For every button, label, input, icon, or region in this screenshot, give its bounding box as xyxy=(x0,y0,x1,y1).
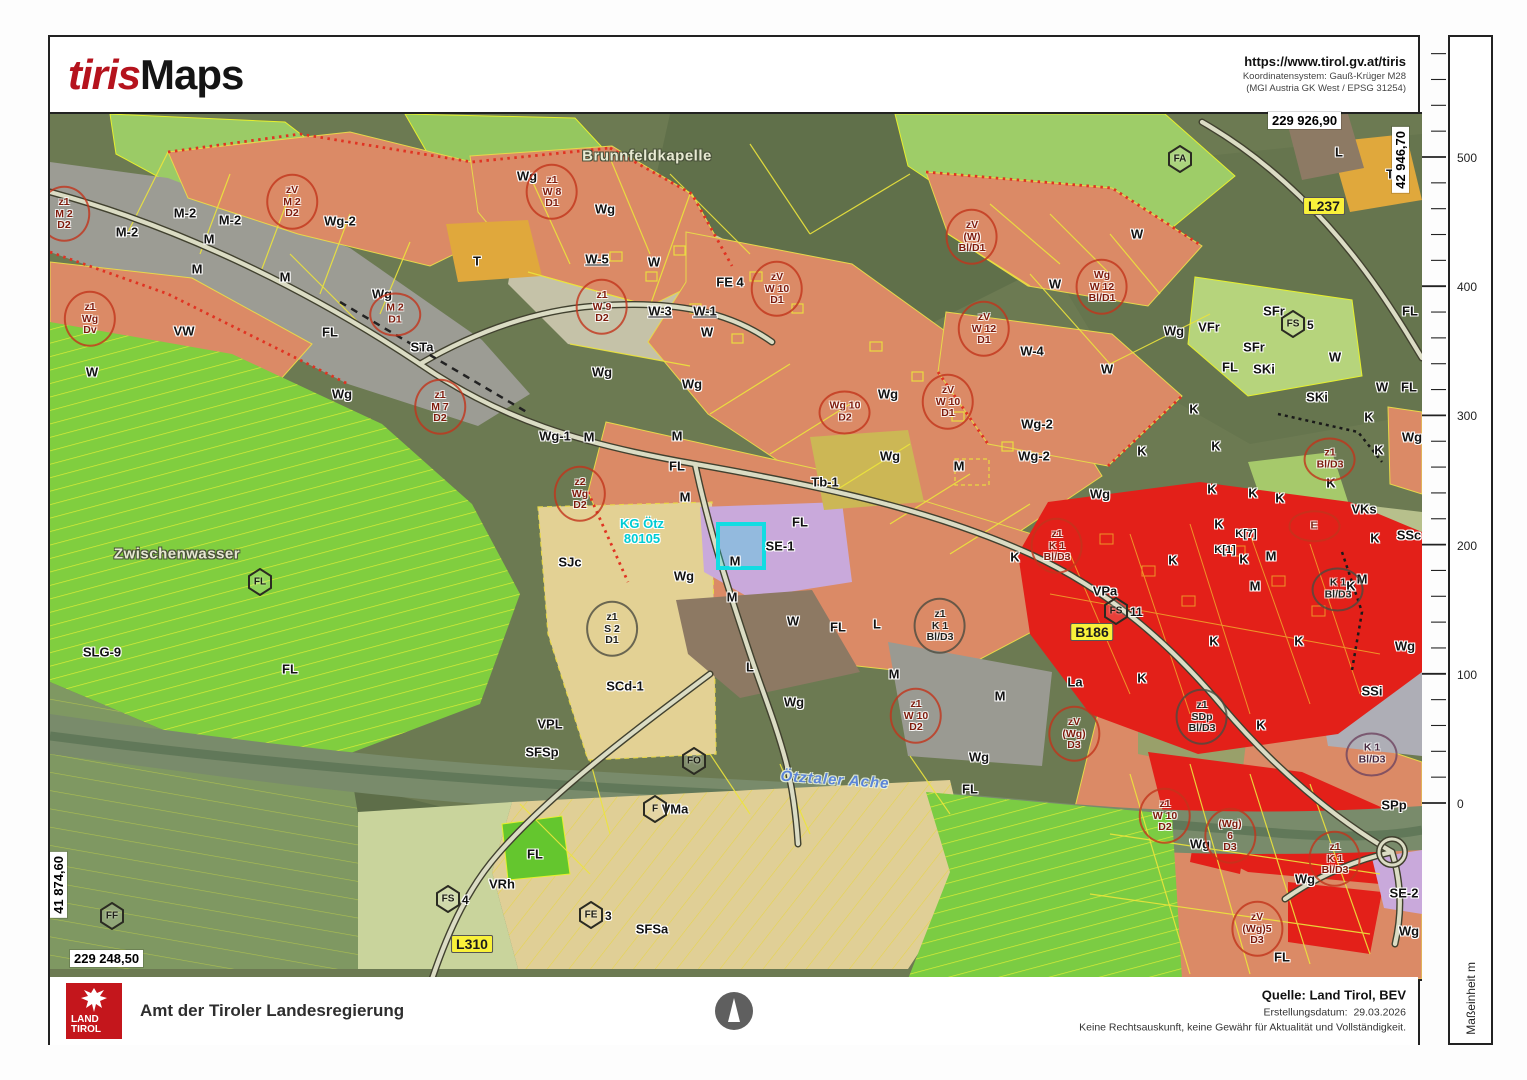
zone-label: FL xyxy=(1274,950,1290,965)
north-arrow xyxy=(728,998,740,1022)
map-annotation: E xyxy=(1310,520,1317,532)
zone-label: SLG-9 xyxy=(83,645,121,660)
zone-label: M-2 xyxy=(174,206,196,221)
zone-label: M-2 xyxy=(116,225,138,240)
map-overlay: M-2M-2M-2MMMVWWg-2TSTaFLWWgWgWgW-5WW-3W-… xyxy=(50,114,1422,979)
zone-label: SE-2 xyxy=(1390,886,1419,901)
road-badge-l310: L310 xyxy=(451,935,493,953)
zone-label: K xyxy=(1326,476,1335,491)
zone-label: FL xyxy=(282,662,298,677)
zone-label: K[7] xyxy=(1235,528,1256,540)
map-annotation: zVW 12D1 xyxy=(972,312,997,347)
coord-bottom-left-y: 41 874,60 xyxy=(50,852,67,918)
agency-title: Amt der Tiroler Landesregierung xyxy=(140,1001,404,1021)
zone-label: K xyxy=(1364,410,1373,425)
zone-label: M xyxy=(584,430,595,445)
map-annotation: z2WgD2 xyxy=(572,477,588,512)
map-annotation: z1SDpBl/D3 xyxy=(1189,700,1216,735)
zone-label: W xyxy=(1131,227,1143,242)
zone-label: M xyxy=(730,554,741,569)
zone-label: W-5 xyxy=(585,252,609,267)
map-annotation: z1S 2D1 xyxy=(604,612,620,647)
zone-label: W xyxy=(1376,380,1388,395)
zone-label: FL xyxy=(1402,304,1418,319)
zone-label: Wg xyxy=(674,569,694,584)
zone-label: W-4 xyxy=(1020,344,1044,359)
zone-label: M xyxy=(672,429,683,444)
tiris-maps-logo: tirisMaps xyxy=(68,51,243,99)
map-annotation: z1K 1Bl/D3 xyxy=(927,609,954,644)
zone-label: M xyxy=(727,590,738,605)
map-annotation: K 1Bl/D3 xyxy=(1325,578,1352,601)
zone-label: T xyxy=(473,254,481,269)
scalebar-unit-label: Maßeinheit m xyxy=(1464,962,1478,1035)
zone-label: M xyxy=(204,232,215,247)
zone-label: K xyxy=(1168,553,1177,568)
zone-label: Wg xyxy=(880,449,900,464)
zone-label: VFr xyxy=(1198,320,1220,335)
zone-label: W xyxy=(1049,277,1061,292)
hex-badge-fs: FS11 xyxy=(1103,597,1129,625)
source-credit: Quelle: Land Tirol, BEV xyxy=(1079,986,1406,1006)
river-label: Ötztaler Ache xyxy=(780,768,890,793)
zone-label: Wg-1 xyxy=(539,429,571,444)
hex-badge-fs: FS5 xyxy=(1280,310,1306,338)
header-meta: https://www.tirol.gv.at/tiris Koordinate… xyxy=(1243,54,1406,96)
zone-label: VPL xyxy=(537,717,562,732)
zone-label: K xyxy=(1137,671,1146,686)
zone-label: K xyxy=(1275,491,1284,506)
map-annotation: K 1Bl/D3 xyxy=(1359,743,1386,766)
zone-label: FL xyxy=(1222,360,1238,375)
map-document-frame: tirisMaps https://www.tirol.gv.at/tiris … xyxy=(48,35,1420,1045)
map-annotation: (Wg)6D3 xyxy=(1218,819,1241,854)
zone-label: K xyxy=(1209,634,1218,649)
zone-label: K[1] xyxy=(1214,544,1235,556)
hex-badge-fl: FL xyxy=(247,568,273,596)
coordinate-system-line1: Koordinatensystem: Gauß-Krüger M28 xyxy=(1243,71,1406,83)
zone-label: K xyxy=(1248,486,1257,501)
zone-label: Wg-2 xyxy=(324,214,356,229)
zone-label: VW xyxy=(174,324,195,339)
tirol-eagle-icon xyxy=(77,986,111,1016)
zone-label: FL xyxy=(322,325,338,340)
coordinate-system-line2: (MGI Austria GK West / EPSG 31254) xyxy=(1243,83,1406,95)
zone-label: Wg xyxy=(784,695,804,710)
disclaimer: Keine Rechtsauskunft, keine Gewähr für A… xyxy=(1079,1021,1406,1037)
map-annotation: z1M 7D2 xyxy=(431,390,449,425)
map-annotation: WgW 12Bl/D1 xyxy=(1089,270,1116,305)
zone-label: SCd-1 xyxy=(606,679,644,694)
zone-label: M-2 xyxy=(219,213,241,228)
zone-label: SSc xyxy=(1397,528,1422,543)
zone-label: K xyxy=(1214,517,1223,532)
zone-label: K xyxy=(1370,531,1379,546)
creation-date-label: Erstellungsdatum: xyxy=(1264,1006,1348,1018)
scalebar-tick-label: 400 xyxy=(1457,280,1477,294)
zone-label: Wg-2 xyxy=(1018,449,1050,464)
zone-label: M xyxy=(1250,579,1261,594)
zone-label: M xyxy=(954,459,965,474)
zone-label: FE 4 xyxy=(716,275,743,290)
zone-label: L xyxy=(873,617,881,632)
zone-label: Wg xyxy=(595,202,615,217)
place-label: Brunnfeldkapelle xyxy=(582,148,712,165)
map-viewport[interactable]: M-2M-2M-2MMMVWWg-2TSTaFLWWgWgWgW-5WW-3W-… xyxy=(50,112,1422,981)
zone-label: K xyxy=(1137,444,1146,459)
road-badge-b186: B186 xyxy=(1070,623,1113,641)
zone-label: Tb-1 xyxy=(811,475,838,490)
zone-label: K xyxy=(1256,718,1265,733)
zone-label: SKi xyxy=(1306,390,1328,405)
zone-label: L xyxy=(746,660,754,675)
hex-badge-fe: FE3 xyxy=(578,901,604,929)
hex-badge-f: F xyxy=(642,795,668,823)
zone-label: W xyxy=(1101,362,1113,377)
zone-label: W-3 xyxy=(648,304,672,319)
hex-badge-fo: FO xyxy=(681,747,707,775)
footer: LAND TIROL Amt der Tiroler Landesregieru… xyxy=(50,977,1418,1045)
map-annotation: z1K 1Bl/D3 xyxy=(1044,529,1071,564)
zone-label: SFSa xyxy=(636,922,669,937)
zone-label: Wg xyxy=(1402,430,1422,445)
land-tirol-logo: LAND TIROL xyxy=(66,983,122,1039)
zone-label: FL xyxy=(962,782,978,797)
zone-label: Wg-2 xyxy=(1021,417,1053,432)
land-tirol-logo-text: LAND TIROL xyxy=(71,1015,101,1035)
zone-label: K xyxy=(1211,439,1220,454)
scalebar-panel: Maßeinheit m 5004003002001000 xyxy=(1448,35,1493,1045)
zone-label: W-1 xyxy=(693,304,717,319)
zone-label: Wg xyxy=(1164,324,1184,339)
hex-badge-fs: FS4 xyxy=(435,885,461,913)
zone-label: W xyxy=(86,365,98,380)
zone-label: VKs xyxy=(1351,502,1376,517)
map-annotation: z1K 1Bl/D3 xyxy=(1322,842,1349,877)
map-annotation: z1W 8D1 xyxy=(543,175,562,210)
place-label: Zwischenwasser xyxy=(114,546,240,563)
zone-label: Wg xyxy=(1190,837,1210,852)
scalebar-tick-label: 300 xyxy=(1457,409,1477,423)
zone-label: STa xyxy=(411,340,434,355)
hex-badge-ff: FF xyxy=(99,902,125,930)
footer-meta: Quelle: Land Tirol, BEV Erstellungsdatum… xyxy=(1079,986,1406,1037)
zone-label: K xyxy=(1207,482,1216,497)
zone-label: Wg xyxy=(332,387,352,402)
zone-label: M xyxy=(1357,572,1368,587)
zone-label: SFr xyxy=(1243,340,1265,355)
map-annotation: zV(Wg)D3 xyxy=(1062,717,1085,752)
zone-label: M xyxy=(995,689,1006,704)
map-annotation: z1W 10D2 xyxy=(904,699,929,734)
map-annotation: z1Bl/D3 xyxy=(1317,448,1344,471)
zone-label: W xyxy=(701,325,713,340)
zone-label: FL xyxy=(669,459,685,474)
logo-maps: Maps xyxy=(140,51,243,98)
zone-label: FL xyxy=(792,515,808,530)
logo-tiris: tiris xyxy=(68,51,140,98)
logo-text-tirol: TIROL xyxy=(71,1025,101,1035)
zone-label: L xyxy=(1335,145,1343,160)
map-annotation: zVW 10D1 xyxy=(765,272,790,307)
zone-label: FL xyxy=(1401,380,1417,395)
zone-label: K xyxy=(1374,443,1383,458)
header: tirisMaps https://www.tirol.gv.at/tiris … xyxy=(50,37,1418,112)
zone-label: M xyxy=(280,270,291,285)
coord-bottom-left-x: 229 248,50 xyxy=(70,950,143,967)
zone-label: W xyxy=(787,614,799,629)
zone-label: VRh xyxy=(489,877,515,892)
zone-label: SSi xyxy=(1362,684,1383,699)
zone-label: K xyxy=(1239,552,1248,567)
zone-label: Wg xyxy=(1090,487,1110,502)
zone-label: FL xyxy=(527,847,543,862)
tiris-url: https://www.tirol.gv.at/tiris xyxy=(1243,54,1406,71)
zone-label: M xyxy=(192,262,203,277)
scalebar-tick-label: 0 xyxy=(1457,797,1464,811)
zone-label: K xyxy=(1189,402,1198,417)
zone-label: Wg xyxy=(517,169,537,184)
zone-label: FL xyxy=(830,620,846,635)
scalebar-tick-label: 200 xyxy=(1457,539,1477,553)
coord-top-right-x: 229 926,90 xyxy=(1268,112,1341,129)
zone-label: Wg xyxy=(1295,872,1315,887)
zone-label: Wg xyxy=(878,387,898,402)
zone-label: Wg xyxy=(1395,639,1415,654)
creation-date-value: 29.03.2026 xyxy=(1353,1006,1406,1018)
zone-label: W xyxy=(648,255,660,270)
zone-label: M xyxy=(889,667,900,682)
map-annotation: zV(Wg)5D3 xyxy=(1242,912,1271,947)
zone-label: SE-1 xyxy=(766,539,795,554)
creation-date: Erstellungsdatum: 29.03.2026 xyxy=(1079,1005,1406,1021)
zone-label: SKi xyxy=(1253,362,1275,377)
zone-label: SPp xyxy=(1381,798,1406,813)
map-annotation: zV(W)Bl/D1 xyxy=(959,220,986,255)
map-annotation: z1W 10D2 xyxy=(1153,799,1178,834)
zone-label: K xyxy=(1294,634,1303,649)
tiris-maps-page: tirisMaps https://www.tirol.gv.at/tiris … xyxy=(0,0,1527,1080)
zone-label: W xyxy=(1329,350,1341,365)
hex-badge-fa: FA xyxy=(1167,145,1193,173)
zone-label: Wg xyxy=(682,377,702,392)
coord-top-right-y: 42 946,70 xyxy=(1392,127,1409,193)
zone-label: M xyxy=(680,490,691,505)
north-compass-icon xyxy=(715,992,753,1030)
map-annotation: Wg 10D2 xyxy=(830,401,861,424)
zone-label: Wg xyxy=(969,750,989,765)
map-annotation: zVW 10D1 xyxy=(936,385,961,420)
map-annotation: zVM 2D2 xyxy=(283,185,301,220)
cadastral-label: KG Ötz80105 xyxy=(620,517,664,547)
scalebar-tick-label: 100 xyxy=(1457,668,1477,682)
zone-label: La xyxy=(1067,675,1082,690)
road-badge-l237: L237 xyxy=(1303,197,1345,215)
zone-label: SJc xyxy=(558,555,581,570)
scalebar-tick-label: 500 xyxy=(1457,151,1477,165)
map-annotation: M 2D1 xyxy=(386,303,404,326)
zone-label: SFSp xyxy=(525,745,558,760)
zone-label: Wg xyxy=(592,365,612,380)
zone-label: M xyxy=(1266,549,1277,564)
map-annotation: z1M 2D2 xyxy=(55,197,73,232)
zone-label: Wg xyxy=(372,287,392,302)
map-annotation: z1W 9D2 xyxy=(593,290,612,325)
map-annotation: z1WgDv xyxy=(82,302,98,337)
zone-label: Wg xyxy=(1399,924,1419,939)
zone-label: K xyxy=(1010,550,1019,565)
scalebar-ticks xyxy=(1420,35,1448,1045)
